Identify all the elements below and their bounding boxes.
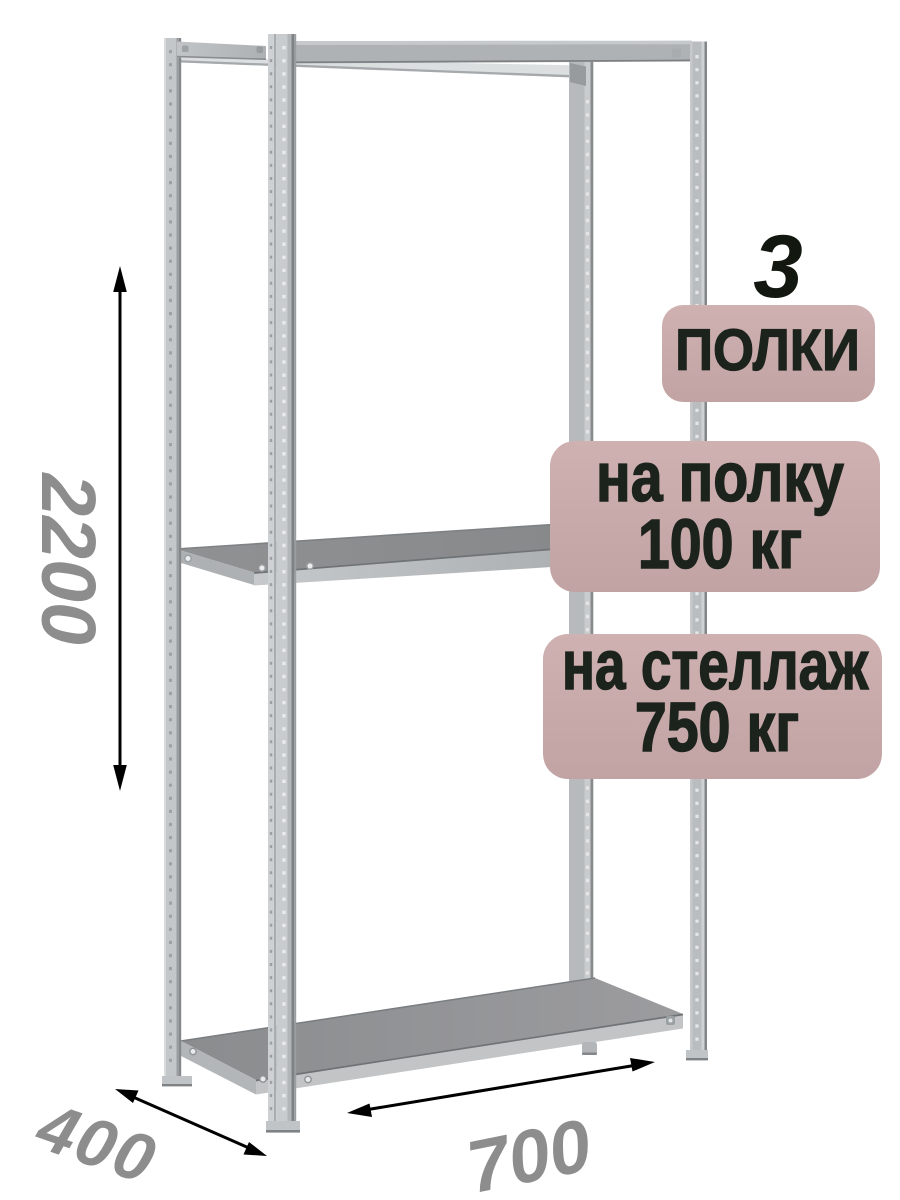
svg-text:ПОЛКИ: ПОЛКИ bbox=[675, 318, 860, 383]
svg-text:400: 400 bbox=[26, 1087, 166, 1198]
svg-text:3: 3 bbox=[753, 216, 803, 316]
svg-text:100 кг: 100 кг bbox=[638, 505, 802, 584]
svg-text:750 кг: 750 кг bbox=[635, 688, 799, 767]
svg-text:2200: 2200 bbox=[25, 471, 111, 644]
svg-text:700: 700 bbox=[460, 1103, 598, 1200]
